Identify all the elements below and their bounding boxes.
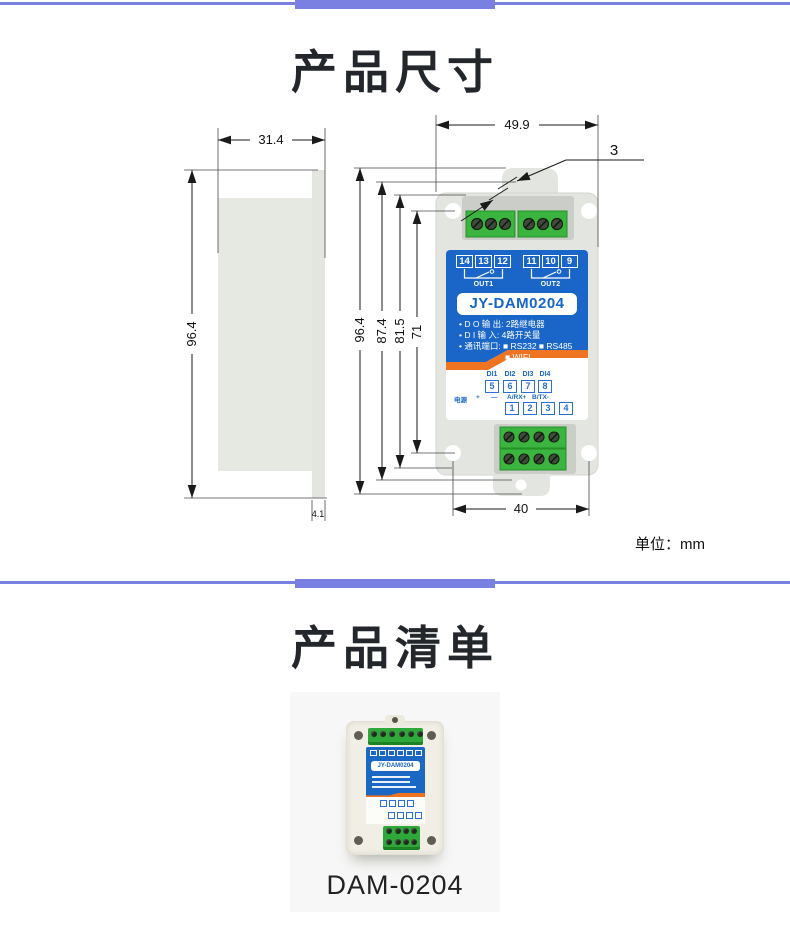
list-section-title: 产品清单 (0, 612, 790, 678)
dim-label-front-width: 49.9 (504, 117, 529, 132)
mount-hole-top-right (581, 203, 597, 219)
mount-hole-bottom-right (581, 445, 597, 461)
power-plus-label: + (476, 394, 480, 401)
dim-label-front-height: 96.4 (352, 317, 367, 342)
photo-hole-br (427, 836, 436, 845)
out1-label: OUT1 (456, 281, 511, 288)
photo-top-terminal (368, 728, 423, 745)
device-front-panel: 14 13 12 11 10 9 OUT1 OUT2 JY-DAM0204 • … (446, 250, 588, 420)
photo-model-badge: JY-DAM0204 (371, 761, 420, 771)
photo-bottom-terminal (383, 826, 420, 850)
dim-label-87: 87.4 (374, 318, 389, 343)
spec-line-di: • D I 输 入: 4路开关量 (459, 330, 572, 341)
side-view-body (218, 198, 313, 471)
dim-label-side-width: 31.4 (258, 132, 283, 147)
photo-spec-line (372, 781, 410, 783)
terminal-14: 14 (456, 255, 473, 268)
relay-terminal-group-1: 14 13 12 (456, 255, 511, 268)
terminal-12: 12 (494, 255, 511, 268)
photo-hole-tr (427, 731, 436, 740)
terminal-2: 2 (523, 402, 537, 415)
photo-lower-panel (366, 797, 425, 824)
spec-line-do: • D O 输 出: 2路继电器 (459, 319, 572, 330)
terminal-11: 11 (523, 255, 540, 268)
photo-front-panel: JY-DAM0204 (366, 747, 425, 797)
photo-tab-hole (392, 717, 398, 723)
dim-label-side-height: 96.4 (184, 321, 199, 346)
di1-label: DI1 (483, 371, 501, 378)
terminal-7: 7 (521, 380, 535, 393)
terminal-10: 10 (542, 255, 559, 268)
unit-note: 单位：mm (560, 533, 780, 554)
terminal-9: 9 (561, 255, 578, 268)
power-label: 电源 (454, 394, 467, 404)
product-photo: JY-DAM0204 (346, 721, 444, 855)
photo-hole-tl (354, 731, 363, 740)
spec-line-wifi: ■ WIFI (459, 352, 572, 363)
side-view (218, 170, 325, 498)
product-card: JY-DAM0204 DAM-0204 (290, 692, 500, 912)
rs485-a-label: A/RX+ (507, 394, 526, 401)
terminal-8: 8 (538, 380, 552, 393)
dim-label-71: 71 (409, 325, 424, 339)
spec-line-comm: • 通讯端口: ■ RS232 ■ RS485 (459, 341, 572, 352)
di4-label: DI4 (536, 371, 554, 378)
side-view-mount-plate (312, 170, 325, 498)
terminal-5: 5 (485, 380, 499, 393)
photo-spec-line (372, 776, 410, 778)
bottom-terminal-blocks (500, 427, 566, 470)
di2-label: DI2 (501, 371, 519, 378)
photo-hole-bl (354, 836, 363, 845)
terminal-3: 3 (541, 402, 555, 415)
out2-label: OUT2 (523, 281, 578, 288)
spec-list: • D O 输 出: 2路继电器 • D I 输 入: 4路开关量 • 通讯端口… (459, 319, 572, 363)
photo-top-tab (385, 715, 405, 725)
photo-terminal-row (370, 750, 422, 756)
dim-label-plate: 4.1 (312, 509, 325, 519)
di3-label: DI3 (519, 371, 537, 378)
section-divider-list (0, 579, 790, 589)
divider-accent-bar (295, 579, 495, 588)
model-badge: JY-DAM0204 (457, 293, 577, 315)
terminal-4: 4 (559, 402, 573, 415)
dim-label-81: 81.5 (392, 318, 407, 343)
power-minus-label: — (491, 394, 498, 401)
terminal-13: 13 (475, 255, 492, 268)
dim-plate-thickness: 4.1 (312, 500, 325, 521)
product-page: { "accent_color": "#7a80e2", "dimensions… (0, 0, 790, 947)
photo-spec-line (372, 786, 416, 788)
relay-terminal-group-2: 11 10 9 (523, 255, 578, 268)
rs485-b-label: B/TX- (532, 394, 549, 401)
terminal-6: 6 (503, 380, 517, 393)
product-name: DAM-0204 (290, 870, 500, 901)
bottom-tab-hole (516, 480, 527, 491)
dim-label-clip: 3 (610, 142, 618, 159)
dim-label-40: 40 (514, 501, 528, 516)
terminal-1: 1 (505, 402, 519, 415)
